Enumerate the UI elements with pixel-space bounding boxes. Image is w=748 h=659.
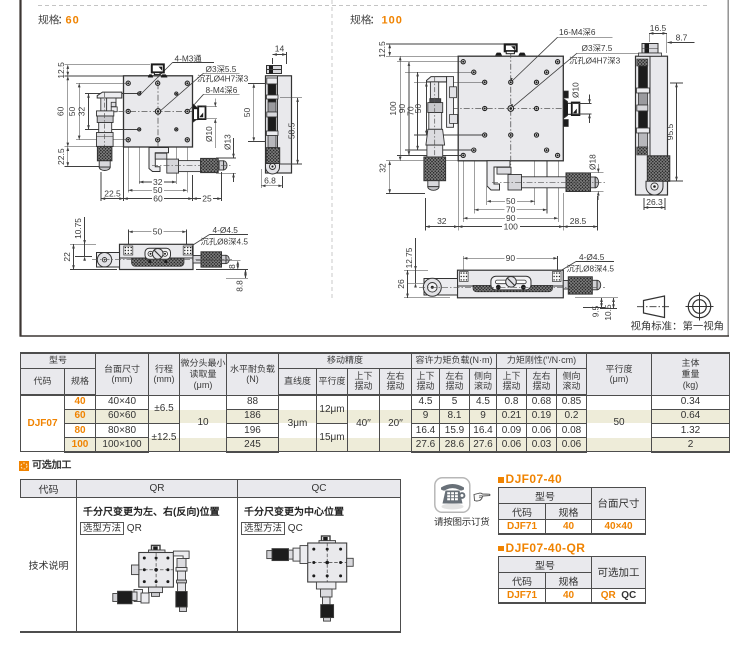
svg-text:8: 8 (227, 264, 237, 269)
svg-text:视角标准：第一视角: 视角标准：第一视角 (631, 321, 725, 333)
svg-text:4-Ø4.5: 4-Ø4.5 (213, 225, 239, 235)
svg-text:10.5: 10.5 (603, 304, 613, 321)
svg-text:50: 50 (413, 104, 423, 114)
svg-text:10.75: 10.75 (73, 218, 83, 239)
svg-text:50: 50 (242, 108, 252, 118)
svg-text:60: 60 (66, 15, 80, 27)
svg-text:100: 100 (504, 222, 518, 232)
svg-text:95.5: 95.5 (665, 123, 675, 140)
svg-text:60: 60 (56, 106, 66, 116)
svg-text:14: 14 (275, 44, 285, 54)
svg-text:60: 60 (153, 194, 163, 204)
svg-text:Ø3深5.5: Ø3深5.5 (206, 64, 237, 74)
svg-text:Ø3深7.5: Ø3深7.5 (582, 43, 613, 53)
svg-text:50: 50 (153, 227, 163, 237)
svg-text:16-M4深6: 16-M4深6 (559, 27, 596, 37)
svg-text:Ø10: Ø10 (571, 82, 581, 98)
svg-text:8-M4深6: 8-M4深6 (206, 85, 238, 95)
svg-text:6.8: 6.8 (264, 176, 276, 186)
svg-text:25: 25 (202, 194, 212, 204)
svg-text:32: 32 (437, 216, 447, 226)
svg-text:26.3: 26.3 (646, 197, 663, 207)
svg-text:沉孔Ø8深4.5: 沉孔Ø8深4.5 (567, 264, 615, 274)
svg-text:：: ： (370, 15, 381, 27)
svg-text:22.5: 22.5 (104, 188, 121, 198)
svg-text:8.7: 8.7 (676, 33, 688, 43)
svg-text:16.5: 16.5 (650, 23, 667, 33)
svg-text:12.5: 12.5 (56, 62, 66, 79)
svg-text:22: 22 (62, 252, 72, 262)
svg-text:Ø10: Ø10 (204, 126, 214, 142)
svg-text:4-M3通: 4-M3通 (175, 54, 203, 64)
svg-text:100: 100 (382, 15, 403, 27)
svg-text:90: 90 (506, 253, 516, 263)
svg-text:Ø18: Ø18 (587, 154, 597, 170)
svg-text:Ø13: Ø13 (223, 134, 233, 150)
svg-text:28.5: 28.5 (570, 216, 587, 226)
svg-text:沉孔Ø4H7深3: 沉孔Ø4H7深3 (197, 74, 249, 84)
svg-text:12.75: 12.75 (404, 247, 414, 268)
svg-text:22.5: 22.5 (56, 148, 66, 165)
svg-text:26: 26 (396, 279, 406, 289)
svg-text:32: 32 (76, 107, 86, 117)
svg-text:4-Ø4.5: 4-Ø4.5 (579, 252, 605, 262)
svg-text:58.5: 58.5 (286, 122, 296, 139)
svg-text:沉孔Ø4H7深3: 沉孔Ø4H7深3 (569, 56, 621, 66)
svg-text:9.5: 9.5 (591, 305, 601, 317)
svg-text:8.8: 8.8 (234, 280, 244, 292)
svg-text:沉孔Ø8深4.5: 沉孔Ø8深4.5 (201, 237, 249, 247)
svg-text:32: 32 (377, 163, 387, 173)
svg-text:12.5: 12.5 (377, 41, 387, 58)
